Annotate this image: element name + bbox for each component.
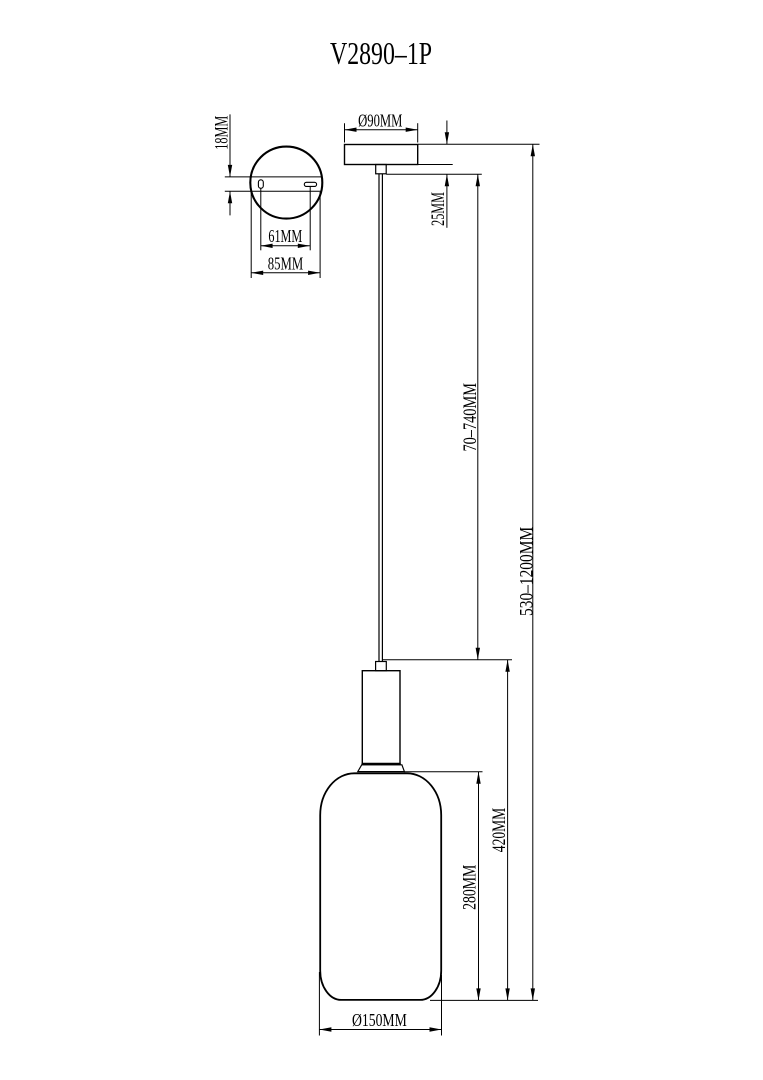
svg-text:85MM: 85MM bbox=[268, 253, 303, 273]
svg-text:61MM: 61MM bbox=[268, 226, 302, 246]
svg-text:280MM: 280MM bbox=[460, 865, 481, 910]
svg-text:25MM: 25MM bbox=[428, 192, 449, 226]
svg-text:70–740MM: 70–740MM bbox=[460, 383, 481, 452]
svg-text:420MM: 420MM bbox=[489, 808, 510, 852]
svg-text:Ø150MM: Ø150MM bbox=[352, 1010, 407, 1030]
svg-text:V2890–1P: V2890–1P bbox=[330, 35, 432, 71]
svg-text:Ø90MM: Ø90MM bbox=[358, 110, 402, 130]
svg-text:530–1200MM: 530–1200MM bbox=[516, 527, 537, 616]
svg-text:18MM: 18MM bbox=[212, 116, 233, 150]
